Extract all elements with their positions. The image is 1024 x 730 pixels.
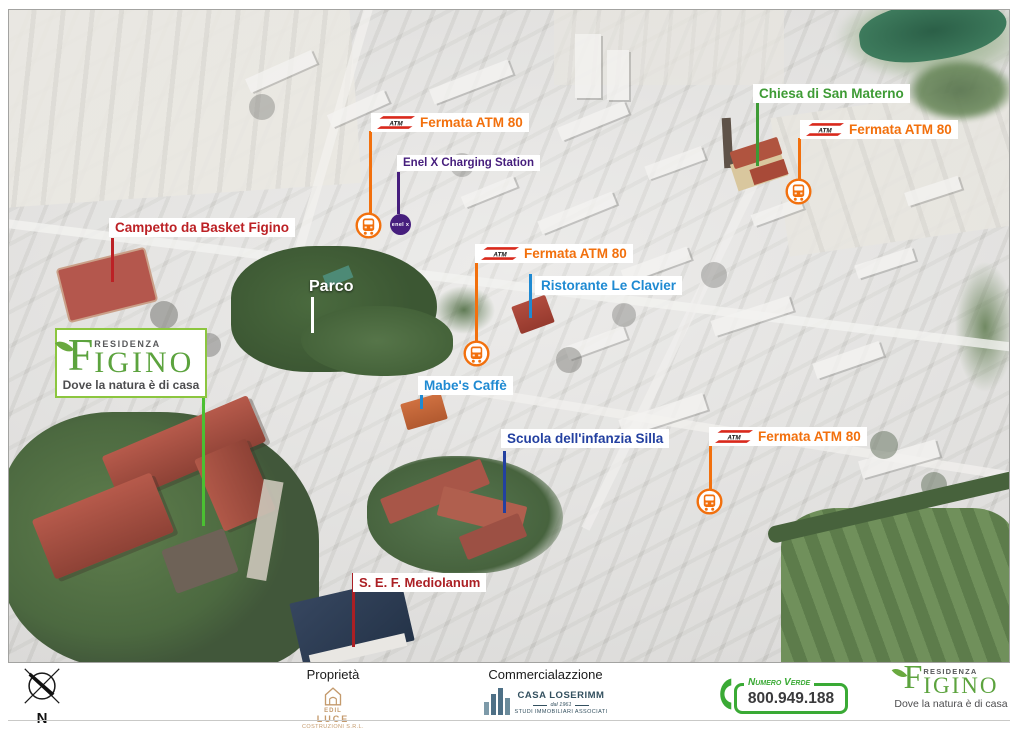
logo-tagline: Dove la natura è di casa (63, 378, 200, 392)
numero-verde: Numero Verde 800.949.188 (714, 674, 866, 718)
building-block (575, 34, 601, 98)
leader-line (798, 138, 801, 180)
rule-line (533, 705, 547, 706)
park-area (433, 286, 495, 334)
compass-north-label: N (16, 710, 68, 727)
basketball-court (56, 247, 159, 324)
logo-tagline: Dove la natura è di casa (894, 698, 1007, 710)
logo-text-column: RESIDENZA IGINO (923, 664, 998, 697)
leader-line (311, 297, 314, 333)
commercializzazione-heading: Commercialazzione (488, 667, 602, 682)
leader-line (709, 446, 712, 490)
leader-line (503, 451, 506, 513)
atm-logo-icon: ATM (377, 116, 415, 129)
building-block (607, 50, 629, 100)
numero-verde-label: Numero Verde (744, 677, 814, 688)
logo-figino-text: IGINO (923, 676, 998, 697)
page-bottom-border (8, 720, 1010, 721)
numero-verde-number: 800.949.188 (737, 686, 845, 711)
logo-initial: F (68, 335, 94, 374)
casa-loserimm-year: dal 1961 (550, 702, 571, 708)
bus-stop-icon (355, 212, 382, 239)
bus-stop-label-text: Fermata ATM 80 (758, 429, 861, 444)
edil-luce-name: LUCE (317, 714, 350, 724)
proprieta-heading: Proprietà (307, 667, 360, 682)
leader-line (475, 263, 478, 343)
enel-charging-label-text: Enel X Charging Station (403, 157, 534, 169)
edil-luce-house-icon (323, 686, 343, 707)
numero-verde-box: Numero Verde 800.949.188 (734, 683, 848, 714)
bus-stop-label: ATM Fermata ATM 80 (800, 120, 958, 139)
buildings-bars-icon (484, 688, 510, 715)
bus-stop-icon (463, 340, 490, 367)
casa-loserimm-text: CASA LOSERIMM dal 1961 STUDI IMMOBILIARI… (515, 690, 608, 715)
building-block (854, 247, 915, 279)
basket-court-label-text: Campetto da Basket Figino (115, 220, 289, 235)
bar (484, 702, 489, 715)
park-label: Parco (309, 278, 353, 296)
restaurant-building (511, 295, 555, 335)
enel-x-icon: enel x (390, 214, 411, 235)
fields-area (8, 9, 362, 209)
basket-court-label: Campetto da Basket Figino (109, 218, 295, 237)
compass: N (16, 664, 68, 727)
restaurant-label: Ristorante Le Clavier (535, 276, 682, 295)
rule-line (575, 705, 589, 706)
cafe-label: Mabe's Caffè (418, 376, 513, 395)
enel-x-icon-text: enel x (392, 222, 409, 228)
sef-mediolanum-label-text: S. E. F. Mediolanum (359, 575, 480, 590)
casa-loserimm-name: CASA LOSERIMM (518, 690, 605, 701)
leader-line (397, 172, 400, 214)
atm-logo-text: ATM (817, 127, 832, 134)
church-label: Chiesa di San Materno (753, 84, 910, 103)
atm-logo-icon: ATM (715, 430, 753, 443)
leader-line (202, 394, 205, 526)
bus-stop-label: ATM Fermata ATM 80 (371, 113, 529, 132)
school-label-text: Scuola dell'infanzia Silla (507, 431, 663, 446)
bus-stop-icon (785, 178, 812, 205)
casa-loserimm-logo: CASA LOSERIMM dal 1961 STUDI IMMOBILIARI… (484, 688, 608, 715)
atm-logo-text: ATM (726, 434, 741, 441)
phone-handset-icon (714, 676, 733, 712)
leader-line (756, 102, 759, 166)
church-label-text: Chiesa di San Materno (759, 86, 904, 101)
building-block (858, 439, 940, 478)
bus-stop-icon (696, 488, 723, 515)
atm-logo-text: ATM (388, 120, 403, 127)
bus-stop-label-text: Fermata ATM 80 (849, 122, 952, 137)
bar (498, 688, 503, 715)
leader-line (111, 238, 114, 282)
leader-line (529, 274, 532, 318)
residenza-figino-logo: F RESIDENZA IGINO Dove la natura è di ca… (55, 328, 207, 398)
building-block (429, 59, 513, 104)
leader-line (369, 131, 372, 213)
aerial-map: ATM Fermata ATM 80 Enel X Charging Stati… (8, 9, 1010, 663)
casa-loserimm-subtitle: STUDI IMMOBILIARI ASSOCIATI (515, 709, 608, 715)
forest-area (905, 58, 1010, 122)
atm-logo-icon: ATM (481, 247, 519, 260)
logo-wordmark: F RESIDENZA IGINO (68, 335, 195, 376)
cafe-building (400, 393, 448, 431)
building-block (564, 326, 627, 360)
edil-luce-subtitle: COSTRUZIONI S.R.L. (302, 724, 364, 730)
leader-line (420, 395, 423, 409)
bus-stop-label: ATM Fermata ATM 80 (475, 244, 633, 263)
logo-wordmark: F RESIDENZA IGINO (903, 664, 998, 697)
logo-figino-text: IGINO (94, 349, 194, 376)
enel-charging-label: Enel X Charging Station (397, 155, 540, 171)
bar (491, 694, 496, 715)
school-label: Scuola dell'infanzia Silla (501, 429, 669, 448)
restaurant-label-text: Ristorante Le Clavier (541, 278, 676, 293)
bus-stop-label-text: Fermata ATM 80 (420, 115, 523, 130)
logo-text-column: RESIDENZA IGINO (94, 335, 194, 376)
compass-icon (20, 664, 64, 708)
casa-loserimm-rule: dal 1961 (533, 702, 588, 708)
building-block (812, 341, 883, 379)
commercializzazione-section: Commercialazzione CASA LOSERIMM dal 1961… (468, 667, 623, 715)
building-block (537, 192, 616, 235)
bar (505, 698, 510, 715)
residenza-figino-logo-footer: F RESIDENZA IGINO Dove la natura è di ca… (884, 664, 1018, 710)
cafe-label-text: Mabe's Caffè (424, 378, 507, 393)
atm-logo-text: ATM (492, 251, 507, 258)
bus-stop-label: ATM Fermata ATM 80 (709, 427, 867, 446)
sef-mediolanum-label: S. E. F. Mediolanum (353, 573, 486, 592)
building-block (644, 146, 705, 180)
logo-initial: F (903, 664, 922, 693)
bus-stop-label-text: Fermata ATM 80 (524, 246, 627, 261)
building-block (557, 101, 629, 141)
atm-logo-icon: ATM (806, 123, 844, 136)
trees-area (955, 262, 1010, 392)
building-block (461, 176, 517, 208)
